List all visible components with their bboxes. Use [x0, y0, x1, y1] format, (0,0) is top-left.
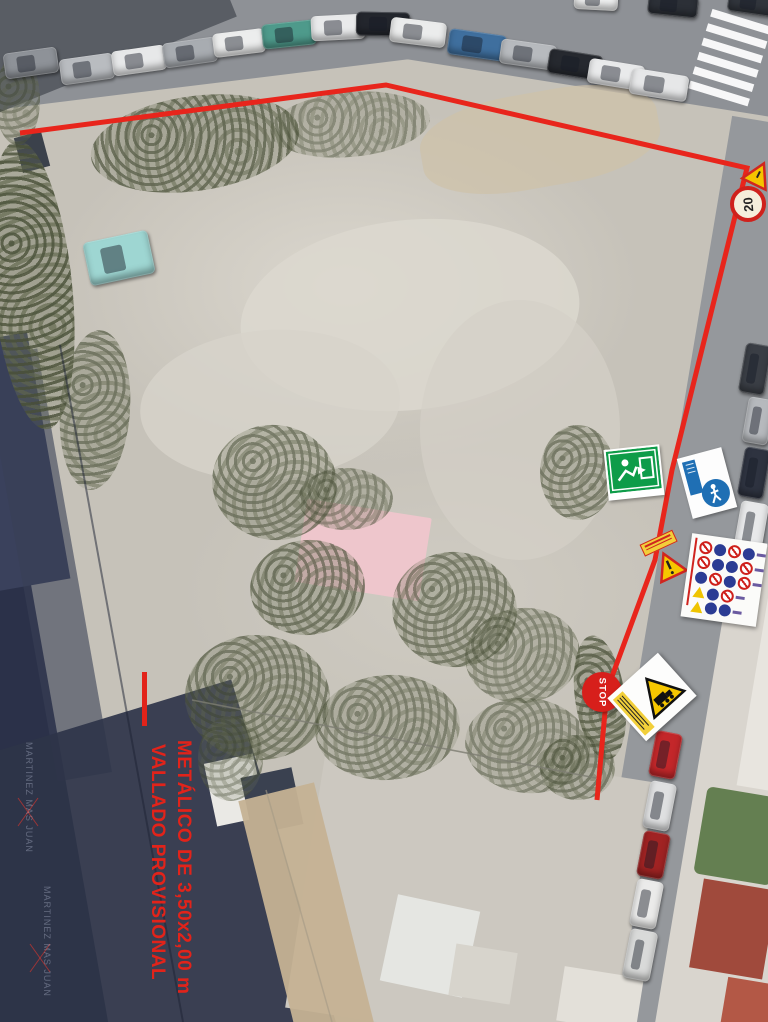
- speed-limit-value: 20: [740, 196, 756, 212]
- stop-label: STOP: [596, 677, 607, 707]
- perimeter-overlay: [0, 0, 768, 1022]
- legend-caption-line1: VALLADO PROVISIONAL: [146, 744, 168, 980]
- pedestrian-icon: [698, 475, 735, 512]
- watermark-text: MARTINEZ MAS JUAN: [24, 742, 34, 853]
- emergency-exit-sign: [603, 444, 664, 501]
- speed-limit-sign: 20: [730, 186, 766, 222]
- site-boundary-line: [266, 790, 332, 1022]
- watermark-text: MARTINEZ MAS JUAN: [42, 886, 52, 997]
- legend-line-swatch: [142, 672, 147, 726]
- site-plan-aerial-view: 20: [0, 0, 768, 1022]
- running-man-icon: [606, 446, 662, 493]
- pictogram-rows: [690, 538, 767, 623]
- legend-caption-line2: METÁLICO DE 3,50x2,00 m: [172, 740, 194, 994]
- site-boundary-line: [192, 700, 596, 778]
- site-safety-pictogram-panel: [681, 533, 768, 627]
